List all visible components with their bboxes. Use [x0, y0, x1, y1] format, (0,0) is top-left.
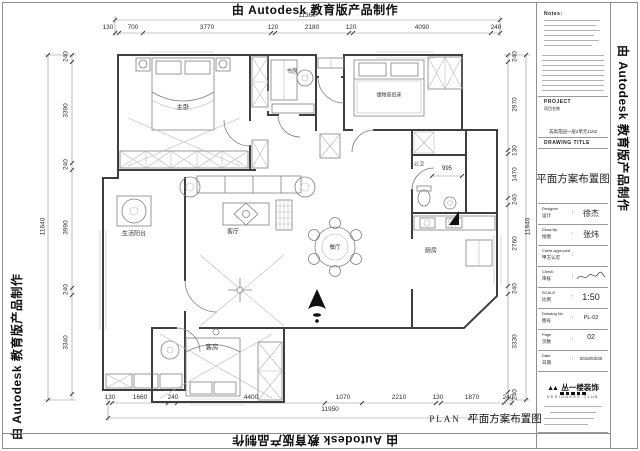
tb-row-value: 1:50	[574, 292, 608, 302]
dim-right-seg: 240	[512, 269, 519, 309]
address-line	[544, 424, 588, 425]
titleblock-separator	[538, 308, 608, 309]
title-block: Notes: PROJECT 项目名称 志高花园一层2单元1102 DRAWIN…	[536, 3, 610, 448]
dim-right-seg: 240	[512, 375, 519, 415]
address-line	[544, 418, 594, 419]
dim-top-seg: 700	[118, 24, 148, 31]
room-label-kitchen: 厨房	[425, 246, 437, 255]
tb-row-label-cn: 设计	[542, 213, 551, 219]
tb-row-label-en: Page	[542, 332, 551, 337]
tb-row-colon: :	[572, 252, 573, 258]
notes-table-line	[542, 60, 604, 61]
notes-table-line	[542, 55, 604, 56]
tb-row-label-cn: 图号	[542, 318, 551, 324]
plan-caption-cn: 平面方案布置图	[463, 411, 547, 426]
notes-table-line	[542, 65, 604, 66]
check-signature	[576, 271, 606, 283]
address-line	[550, 412, 596, 413]
tb-row-value: 张炜	[574, 229, 608, 240]
room-label-balcony: 生活阳台	[122, 229, 146, 238]
north-arrow	[308, 289, 326, 323]
furniture	[106, 57, 495, 400]
dim-right-overall: 11640	[525, 207, 532, 247]
tb-row-label-cn: 比例	[542, 297, 551, 303]
notes-line	[544, 40, 599, 41]
plan-caption-en: PLAN	[425, 414, 465, 424]
dim-bottom-seg: 240	[148, 394, 198, 401]
door-swings	[176, 77, 434, 352]
dim-right-seg: 240	[512, 180, 519, 220]
dim-left-seg: 240	[63, 37, 70, 77]
dim-bottom-seg: 4400	[226, 394, 276, 401]
notes-table-line	[542, 70, 604, 71]
drawing-sheet: 由 Autodesk 教育版产品制作 由 Autodesk 教育版产品制作 由 …	[0, 0, 640, 451]
titleblock-separator	[538, 329, 608, 330]
project-name: 志高花园一层2单元1102	[538, 129, 608, 135]
titleblock-separator	[538, 203, 608, 204]
notes-line	[544, 20, 600, 21]
notes-line	[544, 25, 596, 26]
drawing-title-label: DRAWING TITLE	[544, 140, 590, 146]
logo-subtitle: DESIGNERS CLUB	[536, 395, 610, 399]
notes-table-line	[542, 75, 604, 76]
tb-row-value: PL-02	[574, 315, 608, 321]
tb-row-label-cn: 审核	[542, 276, 551, 282]
project-label-cn: 项目名称	[544, 106, 560, 112]
dim-top-overall: 11360	[282, 12, 332, 19]
tb-row-label-en: Client approved	[542, 248, 570, 253]
tb-row-label-cn: 日期	[542, 360, 551, 366]
notes-line	[544, 35, 594, 36]
room-label-bath: 公卫	[414, 161, 424, 168]
dim-top-seg: 120	[326, 24, 376, 31]
dim-bottom-seg: 1070	[318, 394, 368, 401]
notes-table-line	[542, 85, 604, 86]
dim-bottom-seg: 240	[483, 394, 533, 401]
titleblock-separator	[538, 266, 608, 267]
dim-right-seg: 2970	[512, 85, 519, 125]
dim-bath-width: 995	[432, 166, 462, 172]
titleblock-separator	[538, 350, 608, 351]
tb-row-label-cn: 页数	[542, 339, 551, 345]
tb-row-label-cn: 甲方认可	[542, 255, 560, 261]
room-label-study: 书房	[286, 67, 297, 75]
project-label: PROJECT	[544, 99, 571, 105]
room-label-kids: 储物高低床	[376, 92, 401, 99]
tb-row-label-en: Designer	[542, 206, 558, 211]
titleblock-separator	[538, 148, 608, 149]
titleblock-separator	[538, 287, 608, 288]
notes-table-line	[542, 90, 604, 91]
titleblock-separator	[538, 137, 608, 138]
tb-row-value: 02	[574, 334, 608, 341]
tb-row-label-en: SCALE	[542, 290, 555, 295]
dim-left-seg: 3390	[63, 91, 70, 131]
tb-row-value: 徐杰	[574, 208, 608, 219]
dim-left-seg: 3990	[63, 208, 70, 248]
room-label-living: 客厅	[227, 227, 239, 236]
notes-line	[544, 30, 600, 31]
tb-row-label-en: Date	[542, 353, 550, 358]
titleblock-separator	[538, 224, 608, 225]
room-label-master: 主卧	[177, 101, 190, 111]
notes-line	[544, 45, 592, 46]
tb-row-label-en: Draw By	[542, 227, 557, 232]
titleblock-separator	[538, 432, 608, 433]
titleblock-separator	[538, 96, 608, 97]
drawing-title: 平面方案布置图	[536, 171, 610, 186]
address-line	[544, 406, 602, 407]
notes-title: Notes:	[544, 11, 563, 17]
tb-row-colon: :	[572, 273, 573, 279]
tb-row-label-en: Check	[542, 269, 553, 274]
room-label-guest: 客房	[206, 341, 219, 351]
notes-table-line	[542, 80, 604, 81]
walls	[103, 55, 497, 402]
dim-top-seg: 4090	[397, 24, 447, 31]
tb-row-label-en: Drawing No	[542, 311, 563, 316]
dim-left-seg: 240	[63, 145, 70, 185]
titleblock-separator	[538, 245, 608, 246]
dim-left-seg: 240	[63, 270, 70, 310]
tb-row-label-cn: 绘图	[542, 234, 551, 240]
dim-left-seg: 3340	[63, 323, 70, 363]
room-label-dining: 餐厅	[329, 243, 340, 251]
dim-bottom-overall: 11950	[305, 406, 355, 413]
dim-top-seg: 240	[471, 24, 521, 31]
dim-left-overall: 11640	[40, 207, 47, 247]
dim-right-seg: 2760	[512, 224, 519, 264]
dim-top-seg: 3770	[182, 24, 232, 31]
tb-row-value: 2018/03/30	[574, 356, 608, 361]
titleblock-separator	[538, 371, 608, 372]
windows	[100, 52, 501, 405]
dim-right-seg: 3330	[512, 322, 519, 362]
dim-right-seg: 240	[512, 37, 519, 77]
